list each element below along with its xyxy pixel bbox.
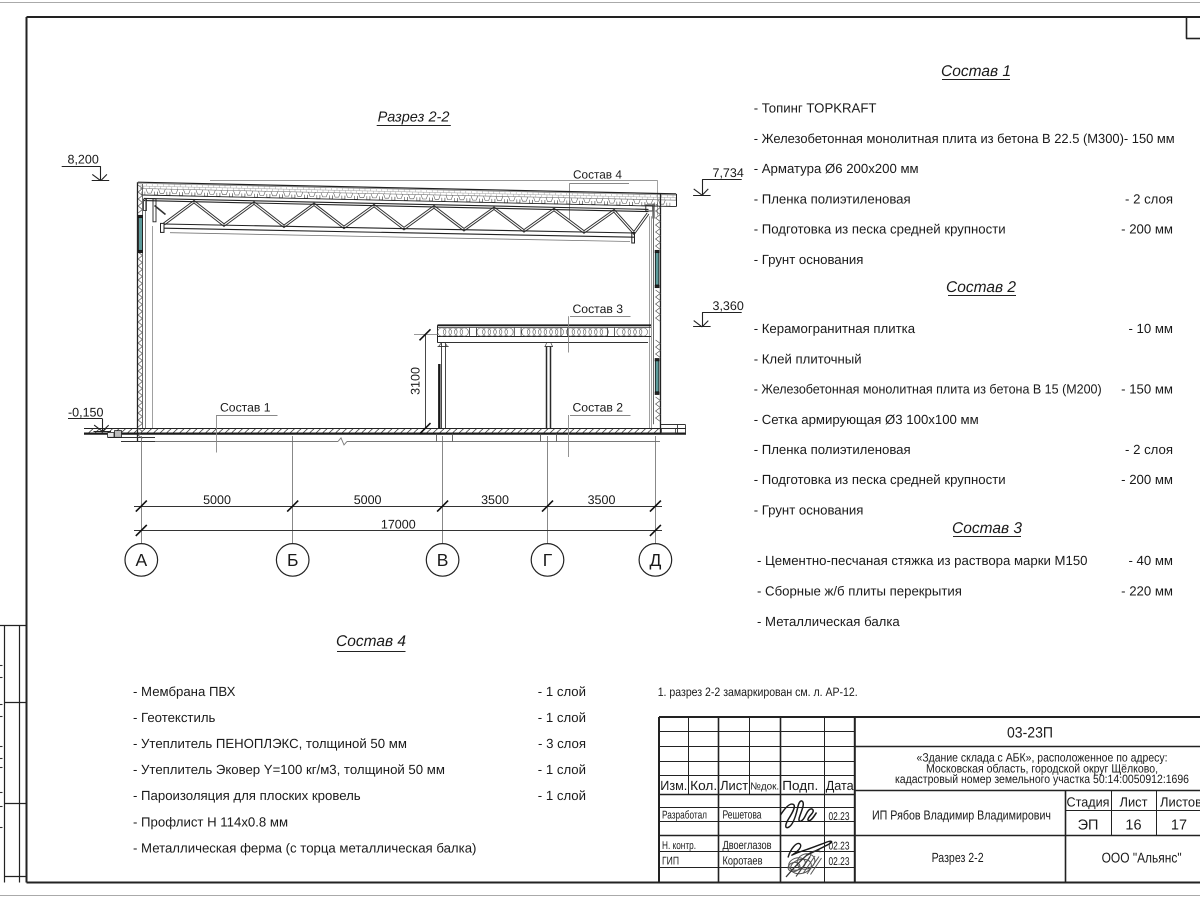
svg-text:Двоеглазов: Двоеглазов	[723, 838, 772, 852]
svg-text:- 200 мм: - 200 мм	[1121, 472, 1173, 487]
svg-text:Разрез 2-2: Разрез 2-2	[378, 110, 450, 126]
svg-text:- Утеплитель Эковер Y=100 кг/м: - Утеплитель Эковер Y=100 кг/м3, толщино…	[133, 762, 445, 777]
svg-text:7,734: 7,734	[713, 166, 744, 180]
svg-text:Н. контр.: Н. контр.	[662, 840, 696, 852]
svg-text:Состав 2: Состав 2	[573, 401, 624, 415]
svg-text:-0,150: -0,150	[68, 405, 103, 419]
svg-text:- Металлическая ферма (с торца: - Металлическая ферма (с торца металличе…	[133, 840, 476, 855]
svg-text:Состав 3: Состав 3	[952, 520, 1022, 537]
svg-text:Подп.: Подп.	[782, 778, 818, 793]
svg-text:№док.: №док.	[750, 781, 779, 792]
svg-text:Б: Б	[287, 550, 298, 570]
svg-text:В: В	[437, 550, 449, 570]
svg-text:ООО "Альянс": ООО "Альянс"	[1102, 850, 1182, 866]
svg-text:А: А	[135, 550, 147, 570]
svg-text:- 2 слоя: - 2 слоя	[1125, 442, 1173, 457]
svg-text:ГИП: ГИП	[662, 855, 679, 867]
svg-text:16: 16	[1125, 818, 1141, 834]
svg-text:5000: 5000	[203, 493, 231, 507]
svg-text:- Пароизоляция для плоских кро: - Пароизоляция для плоских кровель	[133, 788, 361, 803]
svg-text:- 150 мм: - 150 мм	[1121, 382, 1173, 397]
svg-text:- Сетка армирующая Ø3 100х100: - Сетка армирующая Ø3 100х100 мм	[754, 412, 979, 427]
svg-text:Состав 1: Состав 1	[220, 401, 271, 415]
svg-text:Стадия: Стадия	[1067, 794, 1110, 809]
svg-text:1. разрез 2-2 замаркирован см.: 1. разрез 2-2 замаркирован см. л. АР-12.	[658, 685, 858, 699]
svg-text:- Подготовка из песка средней: - Подготовка из песка средней крупности	[754, 222, 1006, 237]
svg-text:- 1 слой: - 1 слой	[538, 684, 586, 699]
svg-text:- Арматура Ø6 200х200 мм: - Арматура Ø6 200х200 мм	[754, 161, 919, 176]
svg-text:Г: Г	[543, 550, 553, 570]
svg-text:- Утеплитель ПЕНОПЛЭКС, толщин: - Утеплитель ПЕНОПЛЭКС, толщиной 50 мм	[133, 736, 407, 751]
svg-text:- Клей плиточный: - Клей плиточный	[754, 351, 862, 366]
svg-text:- 1 слой: - 1 слой	[538, 788, 586, 803]
svg-text:- Сборные ж/б плиты перекрытия: - Сборные ж/б плиты перекрытия	[757, 584, 962, 599]
svg-text:17000: 17000	[381, 517, 416, 531]
svg-text:- 3 слоя: - 3 слоя	[538, 736, 586, 751]
svg-text:Дата: Дата	[826, 778, 855, 793]
svg-text:Состав 2: Состав 2	[946, 279, 1016, 296]
svg-text:Состав 4: Состав 4	[573, 168, 622, 182]
svg-text:- 2 слоя: - 2 слоя	[1125, 191, 1173, 206]
svg-text:Кол.: Кол.	[690, 778, 717, 793]
svg-text:- Геотекстиль: - Геотекстиль	[133, 710, 216, 725]
svg-text:- 40 мм: - 40 мм	[1128, 553, 1173, 568]
svg-text:- Мембрана ПВХ: - Мембрана ПВХ	[133, 684, 236, 699]
svg-text:Состав 3: Состав 3	[573, 302, 624, 316]
svg-text:02.23: 02.23	[829, 811, 850, 823]
svg-text:Решетова: Решетова	[723, 808, 762, 822]
svg-text:- 1 слой: - 1 слой	[538, 710, 586, 725]
svg-text:Листов: Листов	[1160, 794, 1200, 809]
svg-text:3100: 3100	[409, 367, 423, 395]
svg-text:Лист: Лист	[1120, 794, 1148, 809]
svg-text:- 200 мм: - 200 мм	[1121, 222, 1173, 237]
svg-text:- Топинг TOPKRAFT: - Топинг TOPKRAFT	[754, 101, 877, 116]
svg-text:- 10 мм: - 10 мм	[1128, 321, 1173, 336]
svg-text:5000: 5000	[354, 493, 382, 507]
svg-text:- Пленка полиэтиленовая: - Пленка полиэтиленовая	[754, 191, 911, 206]
svg-text:Разработал: Разработал	[662, 810, 707, 822]
svg-text:Изм.: Изм.	[660, 778, 687, 793]
svg-text:- Грунт основания: - Грунт основания	[754, 502, 864, 517]
svg-text:- Грунт основания: - Грунт основания	[754, 252, 864, 267]
svg-text:17: 17	[1171, 818, 1187, 834]
svg-text:- Железобетонная монолитная п: - Железобетонная монолитная плита из бет…	[754, 131, 1175, 146]
svg-text:- 1 слой: - 1 слой	[538, 762, 586, 777]
svg-text:02.23: 02.23	[829, 856, 850, 868]
svg-text:3500: 3500	[588, 493, 616, 507]
svg-text:8,200: 8,200	[68, 153, 99, 167]
svg-text:- Керамогранитная плитка: - Керамогранитная плитка	[754, 321, 916, 336]
svg-text:ЭП: ЭП	[1078, 818, 1099, 834]
svg-text:- Пленка полиэтиленовая: - Пленка полиэтиленовая	[754, 442, 911, 457]
svg-text:Состав 4: Состав 4	[336, 633, 406, 650]
svg-text:Д: Д	[649, 550, 661, 570]
svg-text:3,360: 3,360	[713, 299, 744, 313]
svg-text:кадастровый номер земельного у: кадастровый номер земельного участка 50:…	[895, 772, 1189, 786]
svg-text:ИП Рябов Владимир Владимирович: ИП Рябов Владимир Владимирович	[872, 808, 1051, 823]
svg-text:- Профлист Н 114х0.8 мм: - Профлист Н 114х0.8 мм	[133, 814, 288, 829]
svg-text:Разрез 2-2: Разрез 2-2	[932, 850, 984, 865]
svg-text:- Железобетонная монолитная п: - Железобетонная монолитная плита из бет…	[754, 382, 1102, 397]
svg-text:3500: 3500	[481, 493, 509, 507]
svg-text:Коротаев: Коротаев	[723, 853, 763, 867]
svg-text:- Цементно-песчаная стяжка из: - Цементно-песчаная стяжка из раствора м…	[757, 553, 1088, 568]
svg-text:Лист: Лист	[720, 778, 748, 793]
svg-text:03-23П: 03-23П	[1007, 725, 1053, 742]
svg-text:Состав 1: Состав 1	[941, 63, 1011, 80]
svg-text:- Подготовка из песка средней: - Подготовка из песка средней крупности	[754, 472, 1006, 487]
svg-text:- 220 мм: - 220 мм	[1121, 584, 1173, 599]
svg-text:- Металлическая балка: - Металлическая балка	[757, 614, 900, 629]
